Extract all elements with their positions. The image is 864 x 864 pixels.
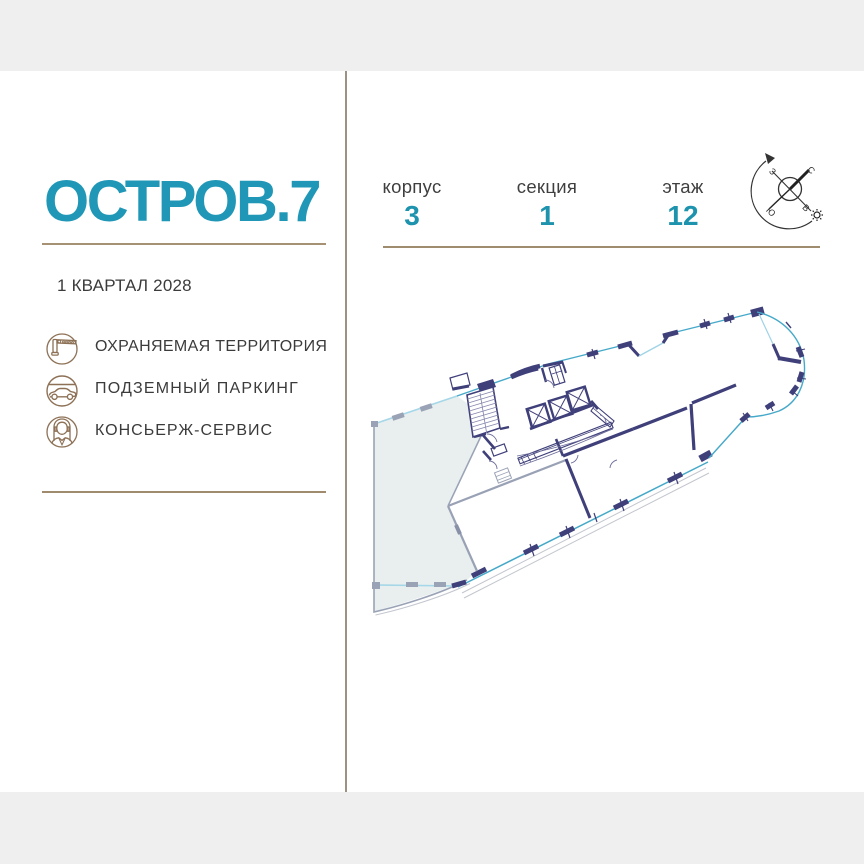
- svg-text:Ю: Ю: [764, 205, 778, 219]
- svg-text:С: С: [805, 164, 817, 176]
- svg-text:В: В: [800, 202, 811, 213]
